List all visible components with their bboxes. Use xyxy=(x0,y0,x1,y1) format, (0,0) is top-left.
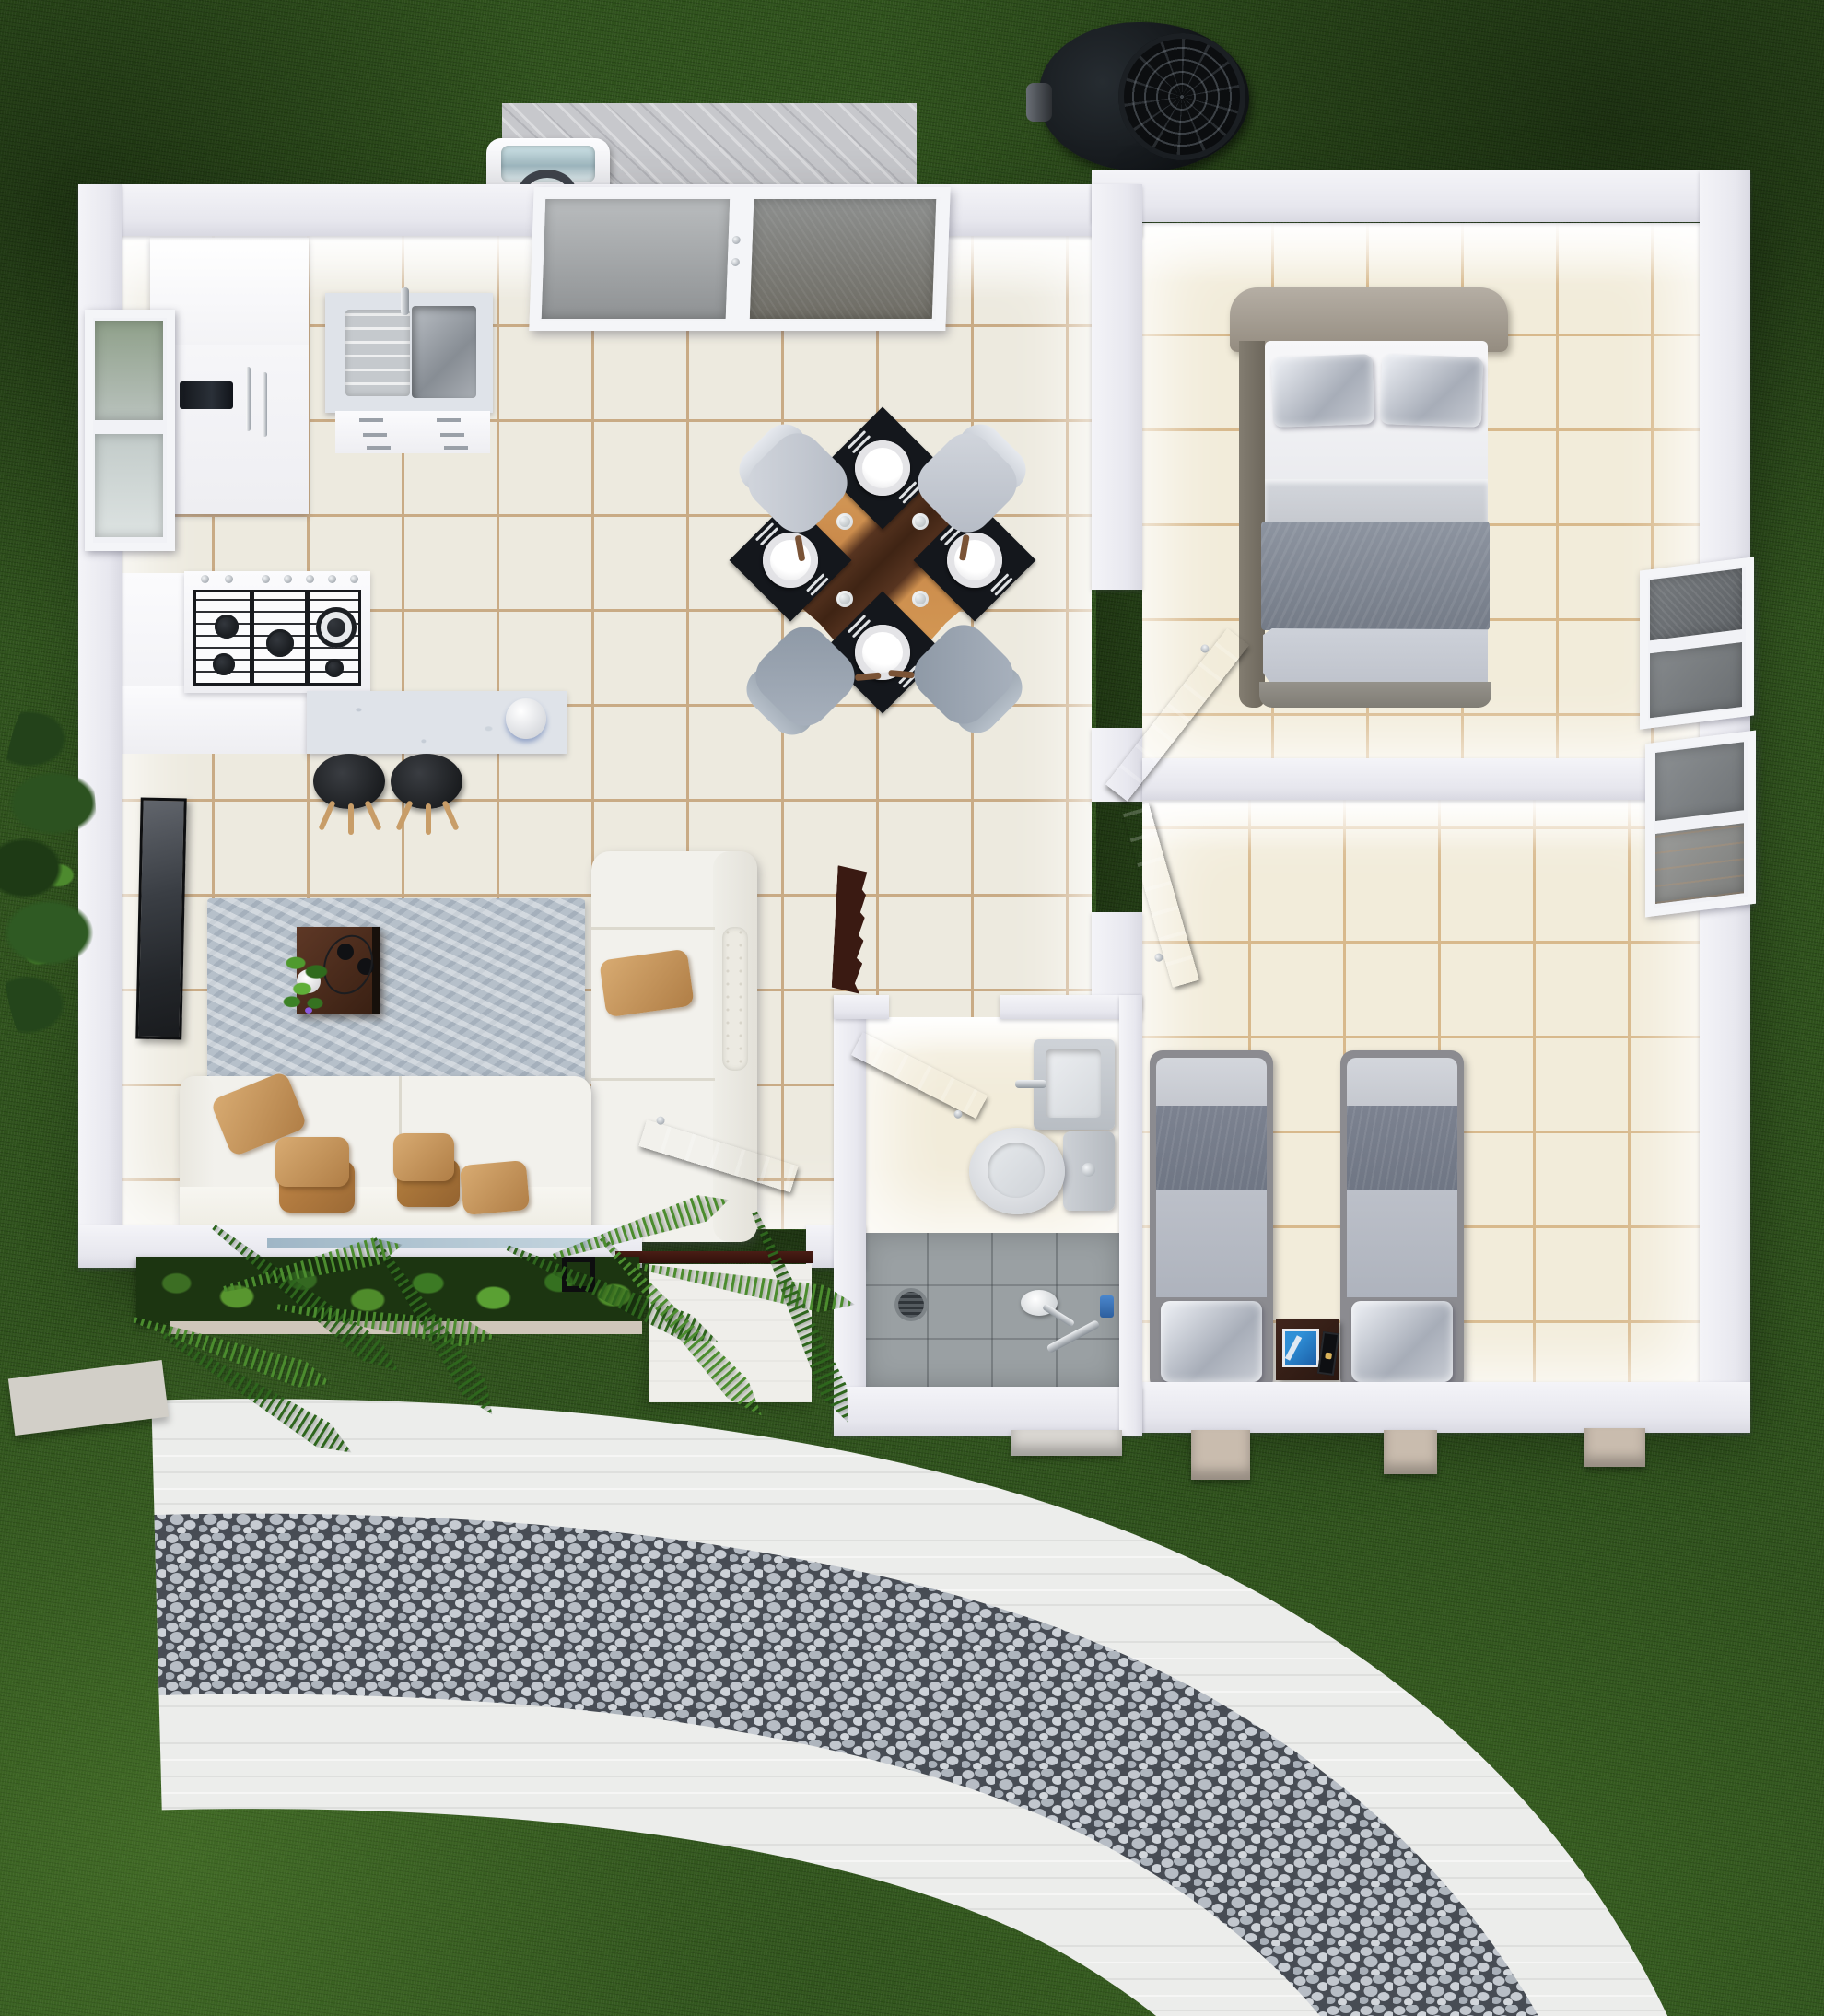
bed-pillow xyxy=(1161,1301,1262,1382)
sheet-fold xyxy=(1347,1058,1457,1106)
burner xyxy=(266,629,294,657)
wall-bathroom-bottom xyxy=(834,1387,1142,1436)
plant-leaves xyxy=(276,947,341,1019)
drinking-glass xyxy=(912,513,929,530)
sofa-seam xyxy=(591,927,715,930)
gas-range xyxy=(184,571,370,693)
area-rug xyxy=(207,898,585,1106)
blanket-light xyxy=(1156,1190,1267,1297)
bed-pillow xyxy=(1351,1301,1453,1382)
shower-set xyxy=(1004,1279,1124,1371)
toilet-lid-inner xyxy=(988,1143,1045,1198)
range-knob xyxy=(284,575,292,583)
drawer-cabinet xyxy=(335,411,490,453)
wall-glow xyxy=(1142,223,1700,284)
sofa-chaise xyxy=(591,851,757,1242)
sofa-main xyxy=(180,1076,591,1242)
fruit-bowl xyxy=(506,698,546,739)
table-edge xyxy=(372,927,380,1014)
breakfast-bar xyxy=(307,691,567,754)
drawer-handle xyxy=(359,418,383,422)
bar-stool xyxy=(313,754,385,809)
floor-drain xyxy=(898,1292,924,1318)
drawer-handle xyxy=(444,446,468,450)
range-knob xyxy=(225,575,233,583)
sink-counter xyxy=(325,293,493,413)
tablet xyxy=(1282,1329,1319,1367)
shampoo-bottle xyxy=(1100,1295,1114,1318)
single-bed xyxy=(1340,1050,1464,1391)
drawer-handle xyxy=(367,446,391,450)
shower-arm xyxy=(1042,1303,1075,1327)
nightstand xyxy=(1276,1319,1339,1380)
window-pane xyxy=(1655,742,1744,821)
front-window-glass xyxy=(267,1238,590,1248)
sink-drainboard xyxy=(345,310,410,396)
folded-blanket xyxy=(1263,628,1488,684)
drinking-glass xyxy=(836,591,853,607)
kitchen-window xyxy=(85,310,175,551)
bar-stool xyxy=(391,754,462,809)
bed-pillow xyxy=(1271,354,1375,428)
duvet-gray xyxy=(1261,522,1490,630)
phone xyxy=(1317,1331,1339,1376)
burner xyxy=(325,659,344,677)
foundation-post xyxy=(1011,1430,1122,1456)
double-bed xyxy=(1230,287,1508,708)
flush-button xyxy=(1082,1163,1095,1177)
burner-large xyxy=(316,607,357,648)
bed-foot-frame xyxy=(1259,682,1491,708)
foundation-post xyxy=(1191,1430,1250,1480)
sliding-glass-door xyxy=(529,187,950,331)
floor-plan-render xyxy=(0,0,1824,2016)
blanket-light xyxy=(1347,1190,1457,1297)
drinking-glass xyxy=(912,591,929,607)
throw-pillow xyxy=(275,1137,349,1187)
door-glass-left xyxy=(542,199,731,319)
drinking-glass xyxy=(836,513,853,530)
bed-pillow xyxy=(1380,354,1484,428)
grate-divider xyxy=(250,592,254,683)
drawer-handle xyxy=(437,418,461,422)
throw-pillow xyxy=(460,1160,530,1215)
wall-glow xyxy=(1142,798,1700,851)
drawer-handle xyxy=(363,433,387,437)
sink-bowl xyxy=(1046,1049,1101,1118)
bbq-handle xyxy=(1026,83,1052,122)
range-knob xyxy=(306,575,314,583)
blanket-light xyxy=(1265,479,1488,523)
potted-plant xyxy=(276,947,341,1019)
foundation-post xyxy=(1584,1428,1645,1467)
range-knob xyxy=(201,575,209,583)
window-pane xyxy=(1655,823,1744,904)
range-knob xyxy=(350,575,358,583)
wall-hallway xyxy=(1092,184,1142,590)
window-pane xyxy=(1650,568,1742,640)
stool-leg xyxy=(426,803,431,835)
wall-top-right-section xyxy=(1092,170,1750,222)
window-pane xyxy=(95,321,163,420)
range-knob xyxy=(328,575,336,583)
phone-logo xyxy=(1325,1353,1332,1360)
toilet xyxy=(969,1128,1117,1216)
wall-bottom-right-section xyxy=(1119,1382,1750,1433)
sink-faucet xyxy=(401,287,409,315)
wall-bathroom-top xyxy=(834,995,889,1019)
wall-tv xyxy=(135,798,186,1040)
wall-bathroom-right xyxy=(1119,995,1142,1436)
single-bed xyxy=(1150,1050,1273,1391)
tablet-screen-art xyxy=(1285,1335,1302,1361)
sheet-fold xyxy=(1156,1058,1267,1106)
wall-sink xyxy=(1034,1039,1115,1130)
cooktop xyxy=(193,590,361,686)
sofa-seam xyxy=(591,1078,715,1081)
window-pane xyxy=(95,434,163,537)
throw-pillow xyxy=(599,949,695,1018)
fridge-handle xyxy=(246,367,251,431)
window-pane xyxy=(1650,642,1742,718)
second-bedroom-window xyxy=(1645,731,1756,918)
kettle-bbq-grill xyxy=(1039,22,1249,171)
foundation-post xyxy=(1384,1430,1437,1474)
door-stile xyxy=(726,197,754,321)
side-bushes xyxy=(0,696,97,1055)
master-bedroom-window xyxy=(1640,557,1754,729)
grate-divider xyxy=(305,592,310,683)
kitchen-peninsula xyxy=(120,686,313,754)
blanket-dark xyxy=(1156,1106,1267,1190)
sink-faucet xyxy=(1015,1080,1046,1088)
range-knob xyxy=(262,575,270,583)
stool-leg xyxy=(348,803,354,835)
bbq-grate xyxy=(1118,33,1245,160)
burner xyxy=(213,653,235,675)
door-glass-right xyxy=(750,199,937,319)
fridge-handle xyxy=(263,372,267,437)
sofa-arm-panel xyxy=(722,927,748,1071)
fridge-vent xyxy=(180,381,233,409)
blanket-dark xyxy=(1347,1106,1457,1190)
burner xyxy=(215,615,239,639)
sink-basin xyxy=(412,306,476,398)
throw-pillow xyxy=(393,1133,454,1181)
drawer-handle xyxy=(440,433,464,437)
